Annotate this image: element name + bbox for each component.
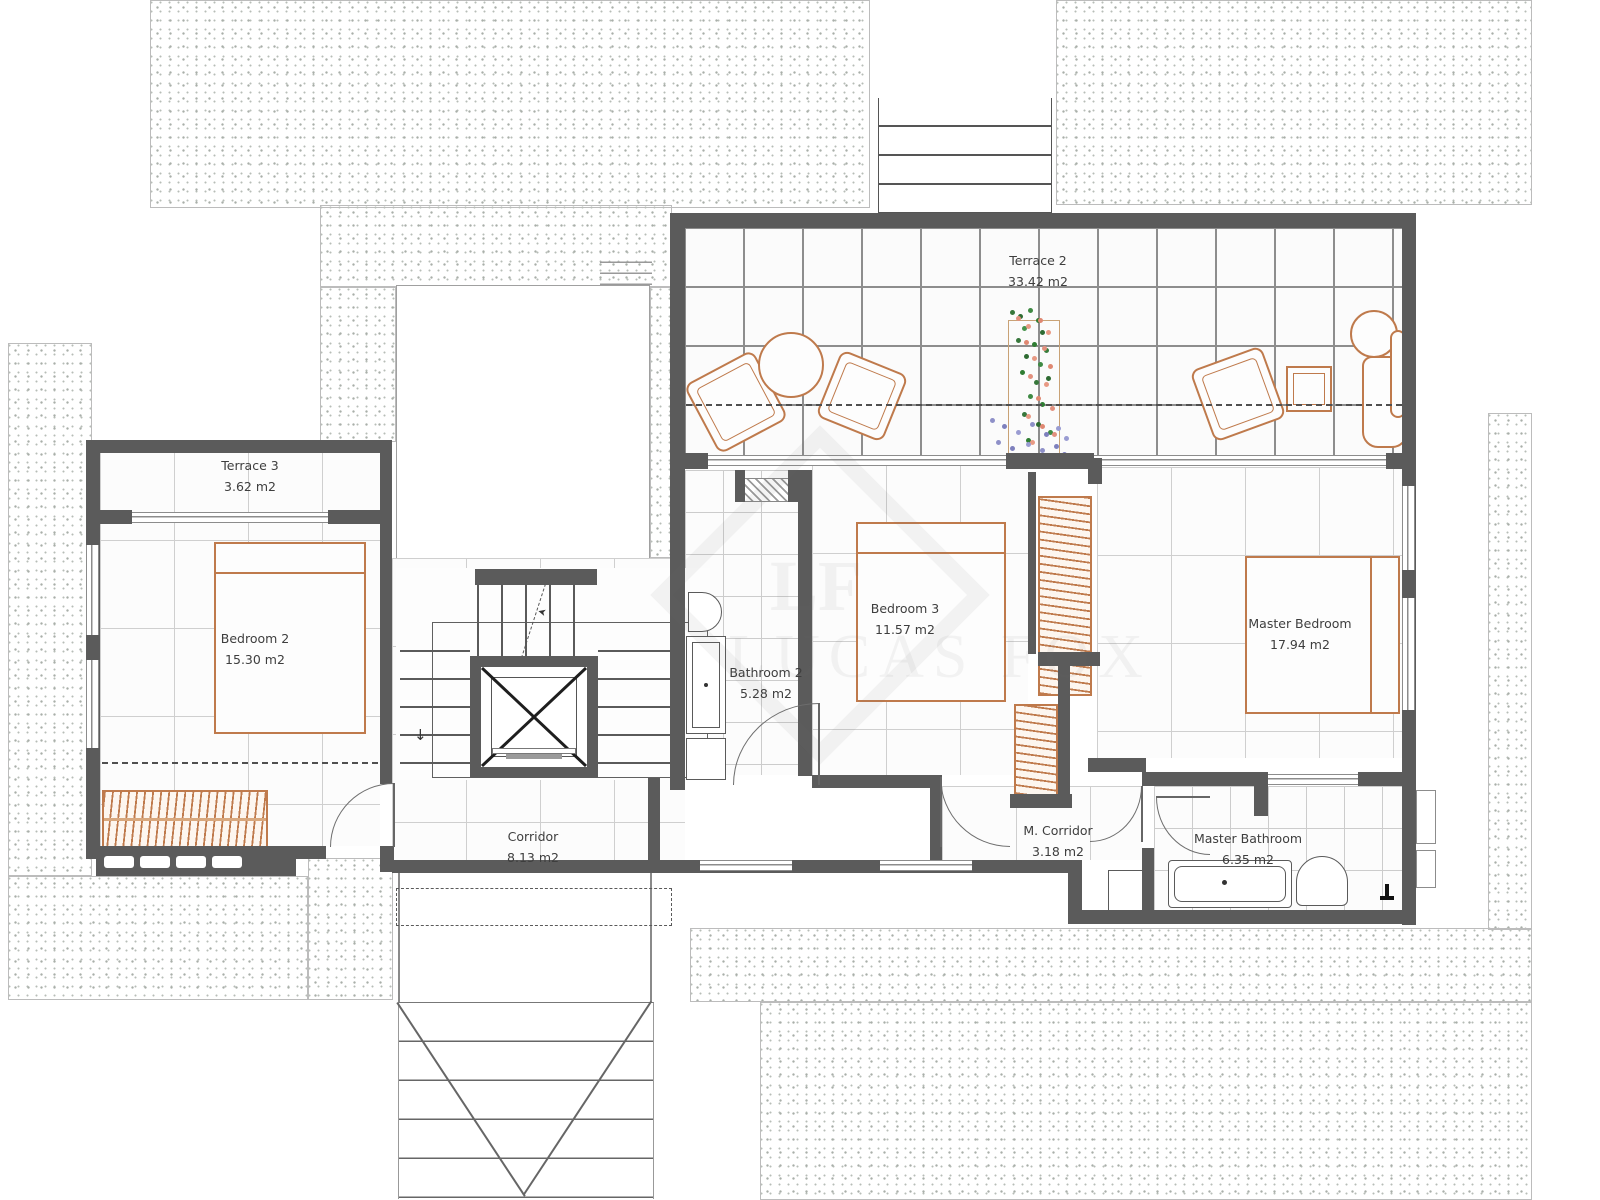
- floor-plan-canvas: ↓ ➤: [0, 0, 1600, 1200]
- room-name: Corridor: [453, 826, 613, 847]
- room-area: 33.42 m2: [958, 271, 1118, 292]
- room-area: 17.94 m2: [1215, 634, 1385, 655]
- ground-texture: [320, 287, 396, 442]
- canopy-dashed-outline: [396, 888, 672, 926]
- exterior-stairs-bottom: [398, 1002, 654, 1199]
- wall: [812, 775, 934, 788]
- bathtub-drain: [1222, 880, 1227, 885]
- room-name: Bedroom 3: [825, 598, 985, 619]
- wall: [670, 213, 685, 790]
- exterior-stairs-top: [878, 98, 1052, 213]
- window: [86, 545, 99, 635]
- window: [1402, 486, 1415, 570]
- wall: [380, 440, 392, 784]
- room-area: 11.57 m2: [825, 619, 985, 640]
- small-steps: [600, 252, 652, 286]
- wall: [1254, 772, 1268, 816]
- ground-texture: [650, 287, 672, 558]
- wall: [648, 778, 660, 862]
- shower-niche: [1416, 790, 1436, 844]
- wall: [86, 510, 132, 524]
- room-area: 6.35 m2: [1168, 849, 1328, 870]
- ground-texture: [308, 858, 393, 1000]
- door-leaf: [393, 783, 395, 847]
- bathroom-cabinet: [686, 738, 726, 780]
- window: [700, 860, 792, 871]
- wall: [1386, 453, 1404, 469]
- wall: [86, 440, 100, 858]
- wall: [1142, 848, 1154, 912]
- wall: [328, 510, 392, 524]
- wall: [86, 440, 392, 453]
- room-label-terrace-2: Terrace 2 33.42 m2: [958, 250, 1118, 292]
- room-name: Bedroom 2: [175, 628, 335, 649]
- bathtub-inner: [1174, 866, 1286, 902]
- plant-foliage: [1010, 310, 1015, 315]
- wall: [1142, 772, 1268, 786]
- room-label-master-bedroom: Master Bedroom 17.94 m2: [1215, 613, 1385, 655]
- bed-headboard-line: [216, 572, 364, 574]
- vent-grille: [212, 856, 242, 868]
- ground-texture: [690, 928, 1532, 1002]
- void-area: [396, 285, 650, 560]
- ground-texture: [8, 876, 308, 1000]
- plant-flowers-blue: [990, 418, 995, 423]
- wall: [1010, 794, 1072, 808]
- wall: [1006, 453, 1094, 469]
- door-leaf: [940, 777, 942, 847]
- wardrobe: [1014, 704, 1058, 796]
- room-area: 3.18 m2: [978, 841, 1138, 862]
- room-label-terrace-3: Terrace 3 3.62 m2: [170, 455, 330, 497]
- room-name: Master Bathroom: [1168, 828, 1328, 849]
- room-area: 8.13 m2: [453, 847, 613, 868]
- room-label-m-corridor: M. Corridor 3.18 m2: [978, 820, 1138, 862]
- room-name: M. Corridor: [978, 820, 1138, 841]
- wardrobe: [102, 790, 268, 852]
- room-name: Terrace 2: [958, 250, 1118, 271]
- room-label-corridor: Corridor 8.13 m2: [453, 826, 613, 868]
- ground-texture: [1056, 0, 1532, 205]
- vent-grille: [104, 856, 134, 868]
- wardrobe-rail: [104, 818, 266, 821]
- wall: [475, 569, 597, 585]
- elevator-sill: [506, 754, 562, 759]
- wall: [1068, 910, 1416, 924]
- room-label-bedroom-2: Bedroom 2 15.30 m2: [175, 628, 335, 670]
- ground-texture: [1488, 413, 1532, 930]
- stair-treads-top: [477, 585, 575, 657]
- shower-niche: [1416, 850, 1436, 888]
- round-table: [758, 332, 824, 398]
- shower-fixture-icon: [1380, 896, 1394, 900]
- room-name: Bathroom 2: [686, 662, 846, 683]
- window: [880, 860, 972, 871]
- ground-texture: [150, 0, 870, 208]
- planter: [1008, 320, 1060, 468]
- window: [86, 660, 99, 748]
- stair-down-arrow: ↓: [414, 726, 427, 744]
- section-dashed-line: [686, 404, 1402, 406]
- wall: [735, 470, 745, 502]
- room-name: Master Bedroom: [1215, 613, 1385, 634]
- door-leaf: [1156, 796, 1210, 798]
- stair-treads-right: [598, 650, 670, 774]
- wall: [684, 453, 708, 469]
- window: [130, 512, 330, 523]
- section-dashed-line: [102, 762, 378, 764]
- room-area: 3.62 m2: [170, 476, 330, 497]
- ground-texture: [8, 343, 92, 876]
- wall: [670, 213, 1416, 228]
- window: [1402, 598, 1415, 710]
- stair-treads-left: [400, 650, 470, 774]
- vent-grille: [140, 856, 170, 868]
- room-area: 15.30 m2: [175, 649, 335, 670]
- door-leaf: [1141, 786, 1143, 842]
- room-label-bathroom-2: Bathroom 2 5.28 m2: [686, 662, 846, 704]
- vent-grille: [176, 856, 206, 868]
- window: [1268, 774, 1358, 785]
- wall: [1358, 772, 1406, 786]
- room-label-master-bathroom: Master Bathroom 6.35 m2: [1168, 828, 1328, 870]
- room-label-bedroom-3: Bedroom 3 11.57 m2: [825, 598, 985, 640]
- room-area: 5.28 m2: [686, 683, 846, 704]
- ground-texture: [760, 1002, 1532, 1200]
- wall: [1088, 758, 1146, 772]
- wall: [1088, 458, 1102, 484]
- room-name: Terrace 3: [170, 455, 330, 476]
- plant-flowers: [1016, 316, 1021, 321]
